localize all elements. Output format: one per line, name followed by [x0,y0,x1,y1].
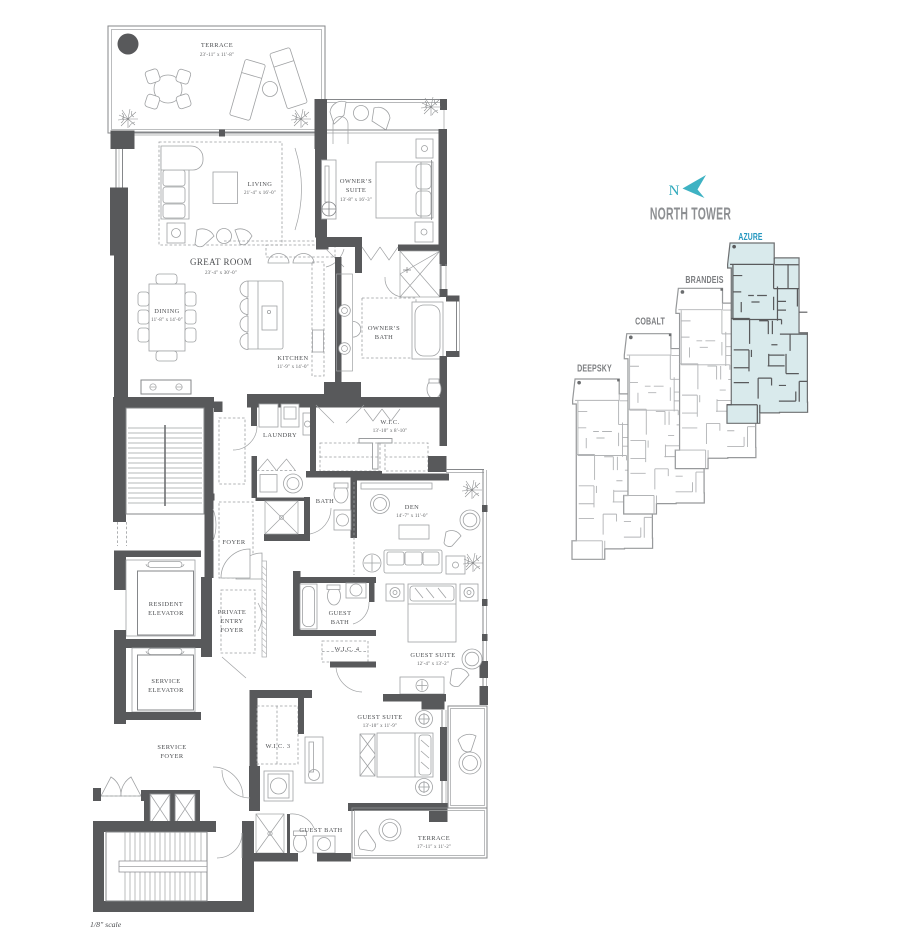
svg-text:11′-8″ x 14′-0″: 11′-8″ x 14′-0″ [151,318,183,323]
svg-text:W.I.C.: W.I.C. [380,419,399,426]
svg-text:SUITE: SUITE [346,187,366,194]
svg-text:DEEPSKY: DEEPSKY [577,362,612,374]
svg-text:DEN: DEN [405,504,419,511]
svg-text:13′-10″ x 8′-10″: 13′-10″ x 8′-10″ [373,429,408,434]
svg-text:PRIVATE: PRIVATE [218,609,247,616]
svg-text:23′-11″ x 11′-8″: 23′-11″ x 11′-8″ [200,53,234,58]
svg-text:OWNER’S: OWNER’S [368,325,400,332]
svg-text:17′-11″ x 11′-2″: 17′-11″ x 11′-2″ [417,845,451,850]
svg-text:GREAT ROOM: GREAT ROOM [190,257,252,267]
svg-text:FOYER: FOYER [222,539,245,546]
svg-text:TERRACE: TERRACE [201,42,233,49]
svg-text:NORTH TOWER: NORTH TOWER [650,205,731,225]
svg-text:TERRACE: TERRACE [418,835,450,842]
svg-text:N: N [669,183,680,199]
svg-text:AZURE: AZURE [738,230,762,242]
svg-text:W.I.C. 4: W.I.C. 4 [334,646,359,653]
svg-text:FOYER: FOYER [160,753,183,760]
svg-text:11′-9″ x 14′-0″: 11′-9″ x 14′-0″ [277,365,309,370]
svg-text:GUEST: GUEST [329,610,352,617]
svg-text:GUEST SUITE: GUEST SUITE [410,652,455,659]
svg-text:1/8″ scale: 1/8″ scale [90,920,122,929]
svg-text:SERVICE: SERVICE [151,678,180,685]
svg-text:SERVICE: SERVICE [157,744,186,751]
svg-text:12′-4″ x 13′-2″: 12′-4″ x 13′-2″ [417,662,449,667]
svg-text:ENTRY: ENTRY [220,618,243,625]
svg-text:ELEVATOR: ELEVATOR [148,687,184,694]
svg-text:FOYER: FOYER [220,627,243,634]
svg-text:BATH: BATH [331,619,350,626]
svg-text:GUEST SUITE: GUEST SUITE [357,714,402,721]
svg-text:OWNER’S: OWNER’S [340,178,372,185]
svg-text:14′-7″ x 11′-0″: 14′-7″ x 11′-0″ [396,514,428,519]
svg-text:KITCHEN: KITCHEN [277,355,308,362]
svg-text:BRANDEIS: BRANDEIS [685,274,723,286]
svg-text:13′-10″ x 11′-9″: 13′-10″ x 11′-9″ [363,724,397,729]
svg-text:LAUNDRY: LAUNDRY [263,432,297,439]
svg-text:21′-4″ x 16′-0″: 21′-4″ x 16′-0″ [244,191,276,196]
svg-text:13′-8″ x 16′-3″: 13′-8″ x 16′-3″ [340,198,372,203]
svg-text:ELEVATOR: ELEVATOR [148,610,184,617]
svg-text:RESIDENT: RESIDENT [149,601,184,608]
svg-text:BATH: BATH [316,498,335,505]
svg-text:GUEST BATH: GUEST BATH [299,827,342,834]
svg-text:W.I.C. 3: W.I.C. 3 [265,743,290,750]
svg-text:DINING: DINING [154,308,179,315]
svg-text:COBALT: COBALT [635,315,665,327]
svg-text:LIVING: LIVING [248,181,273,188]
svg-text:BATH: BATH [375,334,394,341]
svg-text:23′-4″ x 30′-0″: 23′-4″ x 30′-0″ [205,271,237,276]
